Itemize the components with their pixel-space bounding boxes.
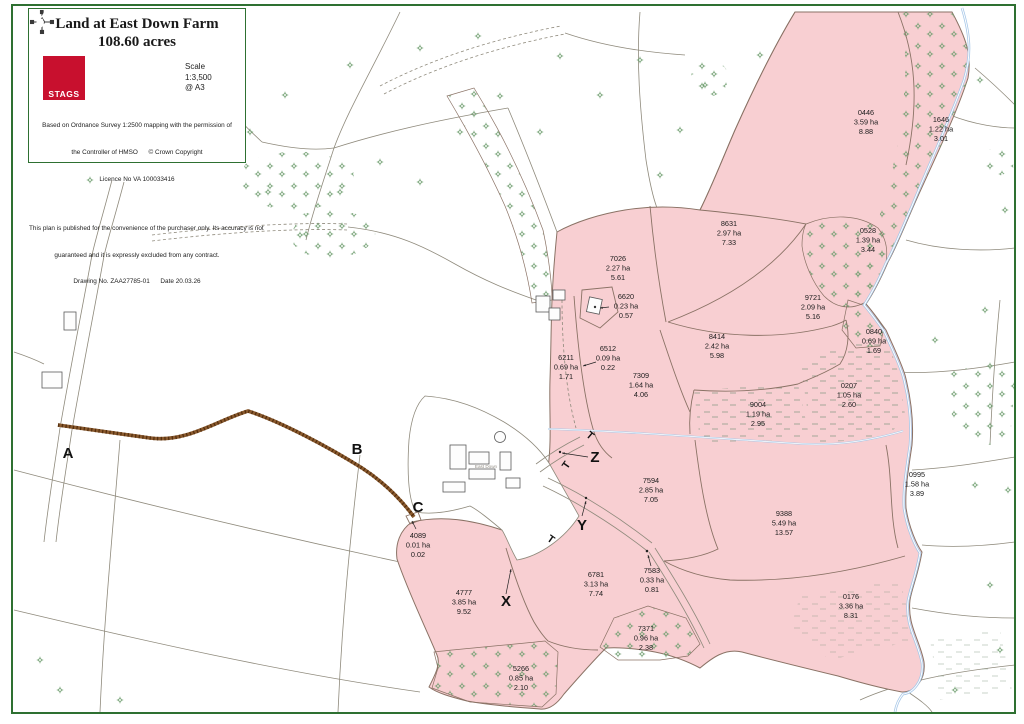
svg-text:2.10: 2.10 bbox=[514, 683, 528, 692]
svg-text:0840: 0840 bbox=[866, 327, 882, 336]
svg-text:4.06: 4.06 bbox=[634, 390, 648, 399]
svg-text:13.57: 13.57 bbox=[775, 528, 793, 537]
svg-text:9721: 9721 bbox=[805, 293, 821, 302]
scale-note: Scale 1:3,500 @ A3 bbox=[185, 62, 231, 94]
route-marker-y: Y bbox=[577, 517, 587, 534]
svg-text:1.58 ha: 1.58 ha bbox=[905, 480, 930, 489]
svg-text:0.69 ha: 0.69 ha bbox=[862, 337, 887, 346]
svg-text:1.19 ha: 1.19 ha bbox=[746, 410, 771, 419]
title-box: Land at East Down Farm 108.60 acres bbox=[28, 8, 246, 163]
svg-text:5266: 5266 bbox=[513, 664, 529, 673]
svg-text:0.33 ha: 0.33 ha bbox=[640, 576, 665, 585]
svg-text:4089: 4089 bbox=[410, 531, 426, 540]
svg-text:7309: 7309 bbox=[633, 371, 649, 380]
svg-text:2.85 ha: 2.85 ha bbox=[639, 486, 664, 495]
route-marker-b: B bbox=[352, 441, 363, 458]
svg-text:5.49 ha: 5.49 ha bbox=[772, 519, 797, 528]
pond bbox=[495, 432, 506, 443]
svg-text:1646: 1646 bbox=[933, 115, 949, 124]
svg-text:2.27 ha: 2.27 ha bbox=[606, 264, 631, 273]
svg-text:7371: 7371 bbox=[638, 624, 654, 633]
deer-icon bbox=[29, 9, 51, 35]
svg-text:6512: 6512 bbox=[600, 344, 616, 353]
svg-text:2.97 ha: 2.97 ha bbox=[717, 229, 742, 238]
svg-text:8414: 8414 bbox=[709, 332, 725, 341]
svg-text:3.13 ha: 3.13 ha bbox=[584, 580, 609, 589]
route-marker-z: Z bbox=[590, 449, 599, 466]
svg-text:0.81: 0.81 bbox=[645, 585, 659, 594]
svg-text:0.69 ha: 0.69 ha bbox=[554, 363, 579, 372]
disclaimer: This plan is published for the convenien… bbox=[29, 207, 245, 306]
svg-text:3.89: 3.89 bbox=[910, 489, 924, 498]
svg-text:1.71: 1.71 bbox=[559, 372, 573, 381]
svg-text:7583: 7583 bbox=[644, 566, 660, 575]
svg-text:3.59 ha: 3.59 ha bbox=[854, 118, 879, 127]
svg-text:2.38: 2.38 bbox=[639, 643, 653, 652]
svg-text:9.52: 9.52 bbox=[457, 607, 471, 616]
plan-title: Land at East Down Farm bbox=[29, 16, 245, 33]
svg-text:3.01: 3.01 bbox=[934, 134, 948, 143]
svg-text:8.88: 8.88 bbox=[859, 127, 873, 136]
svg-text:0446: 0446 bbox=[858, 108, 874, 117]
svg-text:7.05: 7.05 bbox=[644, 495, 658, 504]
svg-text:7.33: 7.33 bbox=[722, 238, 736, 247]
farm-name-label: East Down bbox=[475, 464, 498, 469]
parcel-label: 09951.58 ha3.89 bbox=[905, 470, 930, 498]
svg-text:0.23 ha: 0.23 ha bbox=[614, 302, 639, 311]
scale-label: Scale bbox=[185, 62, 231, 73]
svg-text:0.57: 0.57 bbox=[619, 311, 633, 320]
route-marker-a: A bbox=[63, 445, 74, 462]
svg-text:0528: 0528 bbox=[860, 226, 876, 235]
scale-ratio: 1:3,500 bbox=[185, 73, 231, 84]
access-track bbox=[58, 411, 414, 517]
svg-text:0.22: 0.22 bbox=[601, 363, 615, 372]
svg-text:3.36 ha: 3.36 ha bbox=[839, 602, 864, 611]
route-marker-x: X bbox=[501, 593, 511, 610]
svg-text:9004: 9004 bbox=[750, 400, 766, 409]
svg-text:0207: 0207 bbox=[841, 381, 857, 390]
stags-logo: STAGS bbox=[43, 56, 85, 100]
svg-text:3.44: 3.44 bbox=[861, 245, 875, 254]
svg-text:0.09 ha: 0.09 ha bbox=[596, 354, 621, 363]
svg-text:6781: 6781 bbox=[588, 570, 604, 579]
logo-row: STAGS Scale 1:3,500 @ A3 bbox=[29, 51, 245, 101]
plan-acreage: 108.60 acres bbox=[29, 34, 245, 51]
svg-text:8631: 8631 bbox=[721, 219, 737, 228]
svg-text:0995: 0995 bbox=[909, 470, 925, 479]
svg-text:1.39 ha: 1.39 ha bbox=[856, 236, 881, 245]
svg-text:7.74: 7.74 bbox=[589, 589, 603, 598]
os-attribution: Based on Ordnance Survey 1:2500 mapping … bbox=[29, 104, 245, 203]
svg-text:0.96 ha: 0.96 ha bbox=[634, 634, 659, 643]
svg-text:0.01 ha: 0.01 ha bbox=[406, 541, 431, 550]
svg-text:8.31: 8.31 bbox=[844, 611, 858, 620]
stags-wordmark: STAGS bbox=[48, 90, 79, 99]
svg-text:6211: 6211 bbox=[558, 353, 574, 362]
svg-text:2.95: 2.95 bbox=[751, 419, 765, 428]
svg-text:0176: 0176 bbox=[843, 592, 859, 601]
svg-text:1.05 ha: 1.05 ha bbox=[837, 391, 862, 400]
svg-text:7594: 7594 bbox=[643, 476, 659, 485]
svg-text:3.85 ha: 3.85 ha bbox=[452, 598, 477, 607]
plan-page: 04463.59 ha8.88 16461.22 ha3.01 05281.39… bbox=[0, 0, 1024, 724]
svg-text:0.85 ha: 0.85 ha bbox=[509, 674, 534, 683]
svg-text:9388: 9388 bbox=[776, 509, 792, 518]
svg-text:5.98: 5.98 bbox=[710, 351, 724, 360]
svg-text:2.09 ha: 2.09 ha bbox=[801, 303, 826, 312]
scale-sheet: @ A3 bbox=[185, 83, 231, 94]
svg-text:0.02: 0.02 bbox=[411, 550, 425, 559]
svg-text:1.69: 1.69 bbox=[867, 346, 881, 355]
svg-text:2.60: 2.60 bbox=[842, 400, 856, 409]
svg-text:1.64 ha: 1.64 ha bbox=[629, 381, 654, 390]
svg-text:4777: 4777 bbox=[456, 588, 472, 597]
svg-text:5.16: 5.16 bbox=[806, 312, 820, 321]
svg-text:7026: 7026 bbox=[610, 254, 626, 263]
svg-text:2.42 ha: 2.42 ha bbox=[705, 342, 730, 351]
svg-text:5.61: 5.61 bbox=[611, 273, 625, 282]
svg-text:6620: 6620 bbox=[618, 292, 634, 301]
svg-text:1.22 ha: 1.22 ha bbox=[929, 125, 954, 134]
route-marker-c: C bbox=[413, 499, 424, 516]
